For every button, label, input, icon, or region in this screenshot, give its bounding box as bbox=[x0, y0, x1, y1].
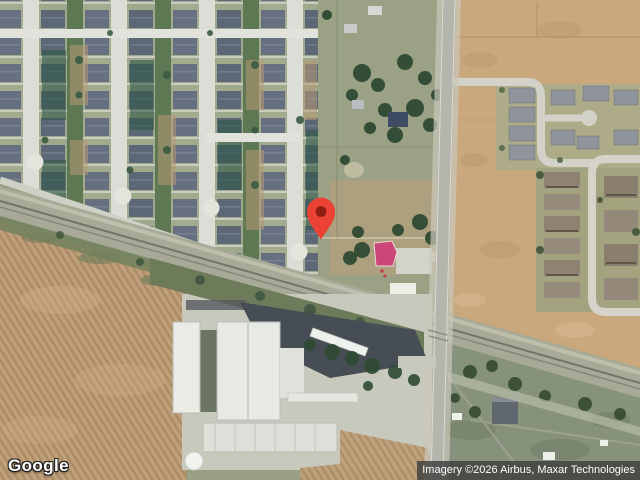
housing-development-e bbox=[536, 159, 640, 312]
street bbox=[205, 133, 301, 142]
pink-roof-building bbox=[374, 241, 397, 266]
satellite-imagery-canvas[interactable] bbox=[0, 0, 640, 480]
side-drive bbox=[398, 356, 436, 368]
shed bbox=[543, 452, 555, 460]
concrete-pad bbox=[396, 248, 432, 274]
warehouse-wing bbox=[280, 348, 304, 398]
shed bbox=[344, 24, 357, 33]
google-logo[interactable]: Google bbox=[8, 456, 69, 476]
shed bbox=[368, 6, 382, 15]
street bbox=[0, 29, 318, 38]
imagery-attribution: Imagery ©2026 Airbus, Maxar Technologies bbox=[417, 461, 640, 480]
shed bbox=[452, 413, 462, 420]
shed bbox=[600, 440, 608, 446]
rural-parcel bbox=[318, 0, 449, 314]
warehouse bbox=[173, 322, 200, 413]
shed bbox=[352, 100, 364, 109]
blue-roof-house bbox=[388, 112, 408, 127]
long-building bbox=[288, 393, 358, 402]
storage-tank bbox=[185, 452, 203, 470]
satellite-map-view[interactable]: Google Imagery ©2026 Airbus, Maxar Techn… bbox=[0, 0, 640, 480]
warehouse bbox=[203, 423, 337, 452]
